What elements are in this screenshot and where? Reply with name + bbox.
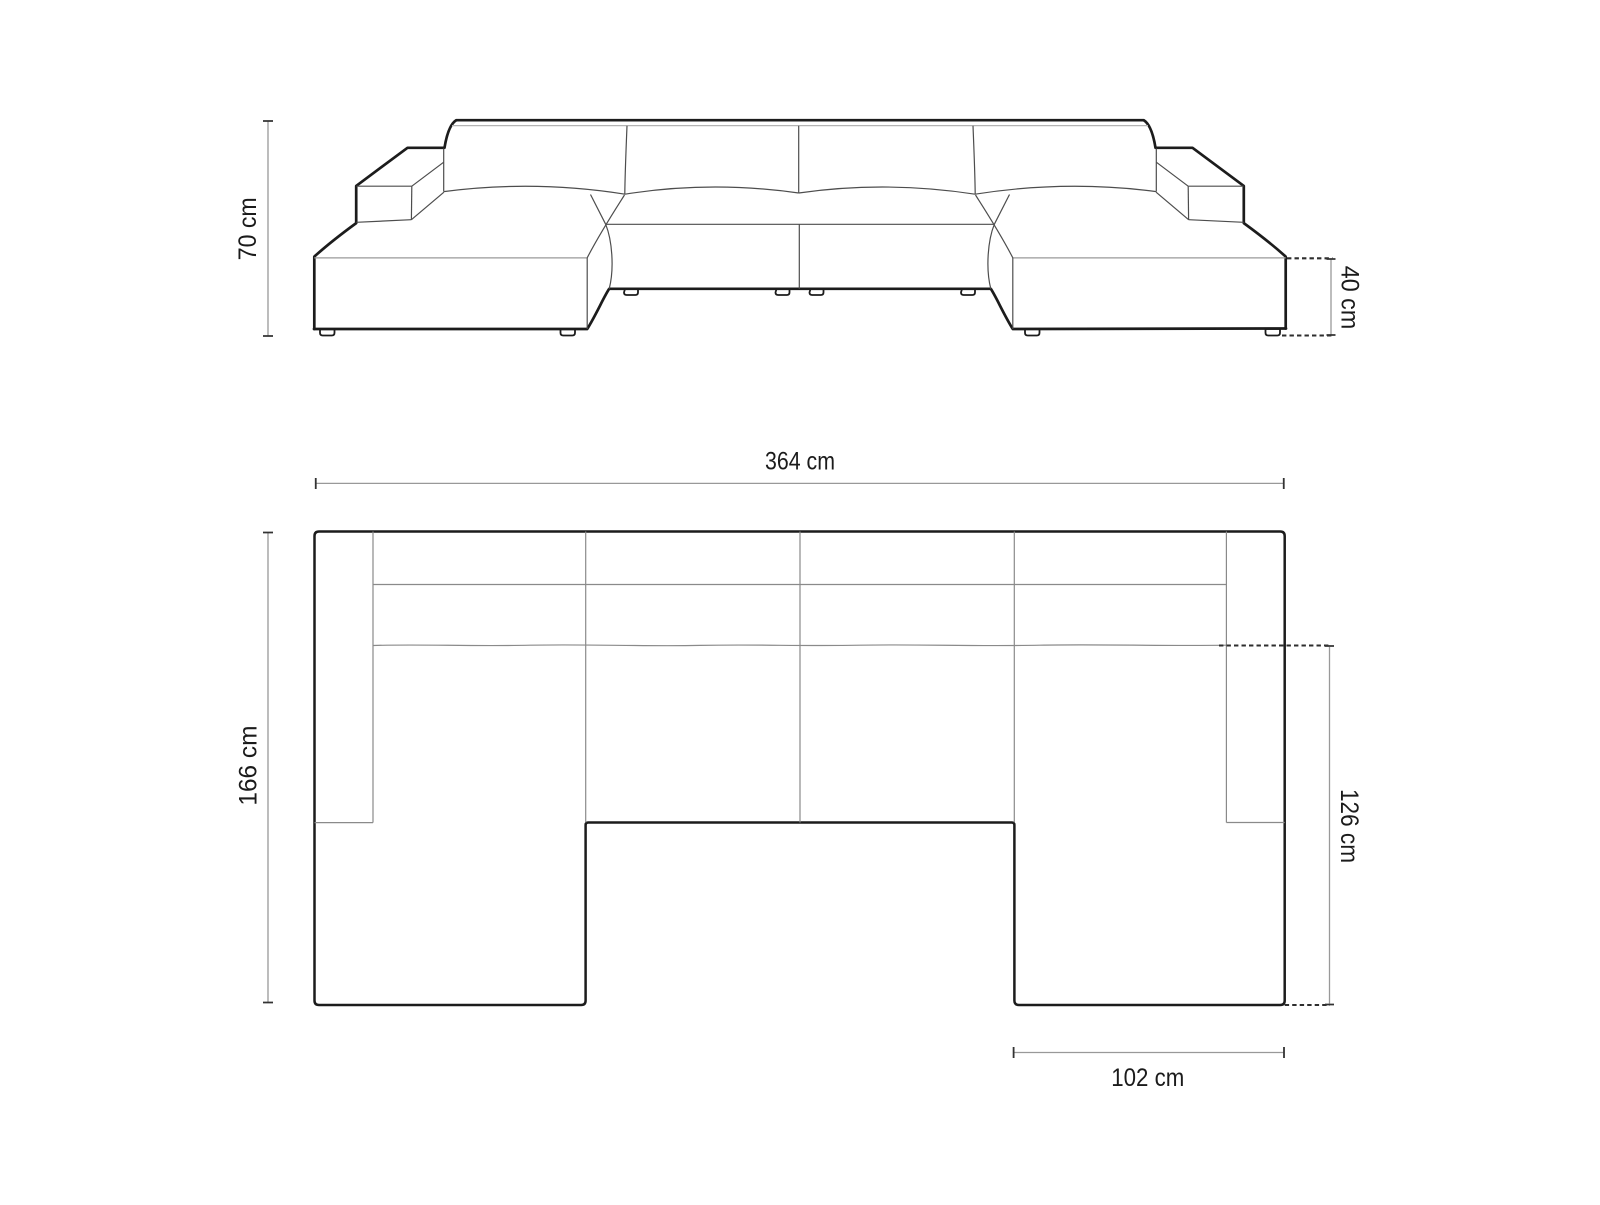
- svg-text:126 cm: 126 cm: [1335, 789, 1363, 863]
- svg-text:70 cm: 70 cm: [234, 197, 262, 260]
- svg-text:40 cm: 40 cm: [1336, 266, 1364, 330]
- svg-text:102 cm: 102 cm: [1111, 1064, 1184, 1092]
- svg-text:166 cm: 166 cm: [234, 726, 262, 806]
- svg-text:364 cm: 364 cm: [765, 448, 835, 476]
